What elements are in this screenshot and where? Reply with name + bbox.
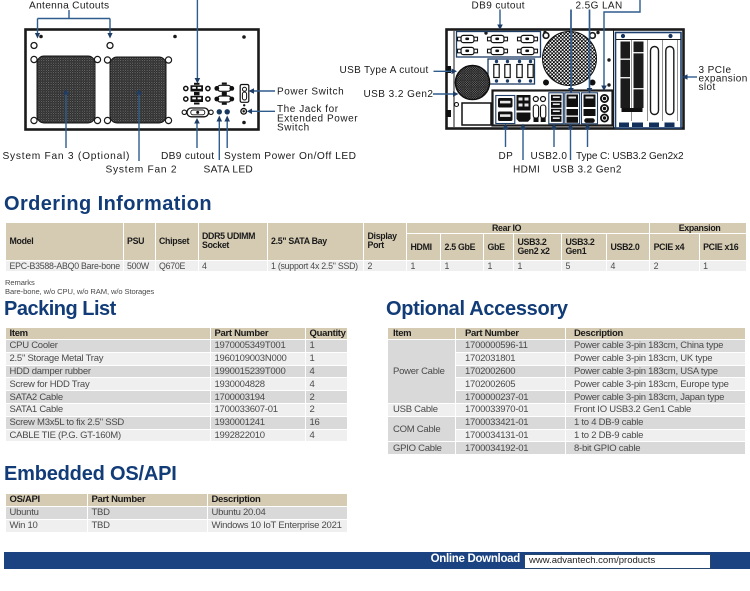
svg-text:Antenna Cutouts: Antenna Cutouts (29, 1, 109, 12)
svg-text:System Fan 3 (Optional): System Fan 3 (Optional) (3, 151, 131, 162)
svg-text:slot: slot (699, 82, 716, 93)
svg-text:System Fan 2: System Fan 2 (106, 165, 178, 176)
svg-text:DP: DP (499, 151, 514, 162)
svg-text:Switch: Switch (277, 123, 310, 134)
svg-text:SATA LED: SATA LED (204, 165, 254, 176)
svg-text:HDMI: HDMI (513, 165, 540, 176)
svg-text:USB 3.2 Gen2: USB 3.2 Gen2 (364, 89, 434, 100)
svg-text:DB9 cutout: DB9 cutout (161, 151, 214, 162)
svg-text:DB9 cutout: DB9 cutout (472, 1, 525, 12)
svg-text:USB2.0: USB2.0 (531, 151, 568, 162)
svg-text:Type C: USB3.2 Gen2x2: Type C: USB3.2 Gen2x2 (576, 151, 684, 162)
svg-text:System Power On/Off LED: System Power On/Off LED (224, 151, 356, 162)
svg-text:USB 3.2 Gen2: USB 3.2 Gen2 (553, 165, 622, 176)
svg-text:2.5G LAN: 2.5G LAN (576, 1, 623, 12)
svg-text:Power Switch: Power Switch (277, 86, 344, 97)
svg-text:USB Type A cutout: USB Type A cutout (340, 65, 429, 76)
